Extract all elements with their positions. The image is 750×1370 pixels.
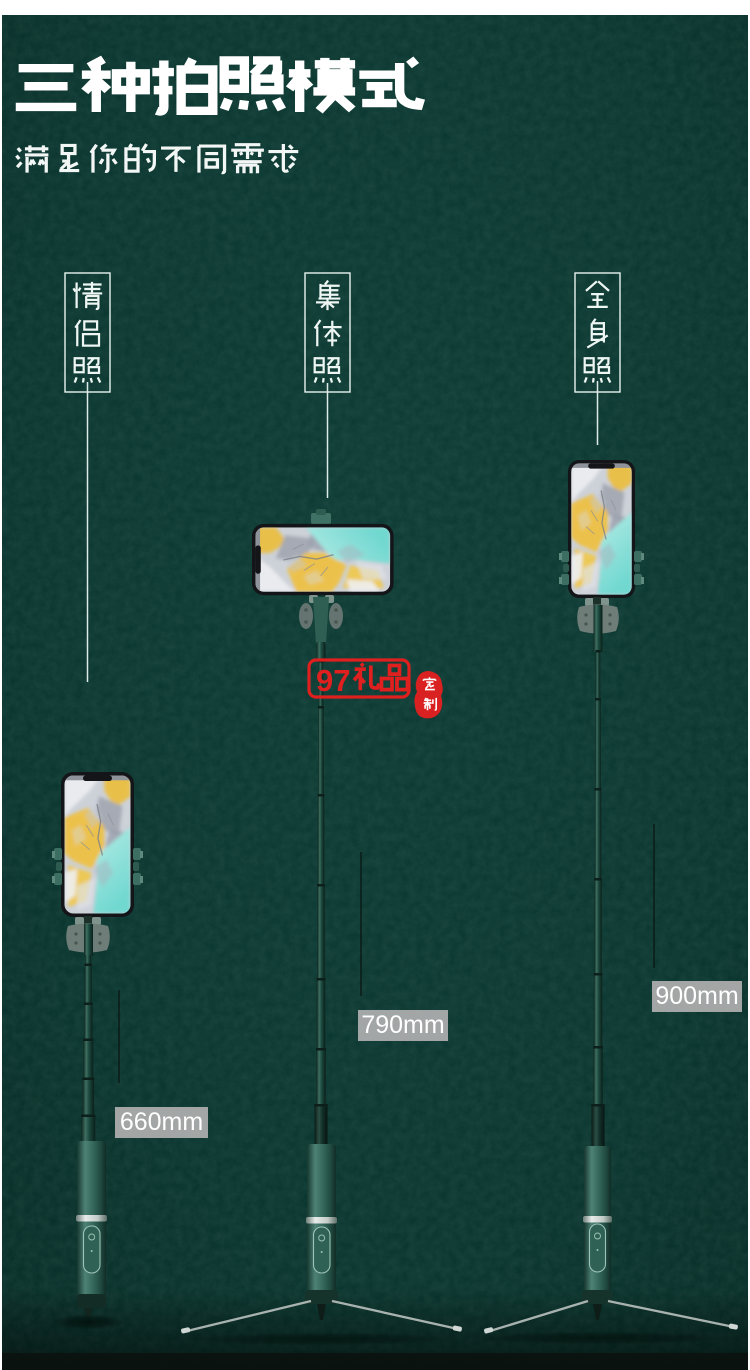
- svg-text:660mm: 660mm: [120, 1108, 203, 1136]
- svg-text:900mm: 900mm: [655, 982, 738, 1010]
- svg-text:97: 97: [316, 663, 350, 698]
- svg-text:790mm: 790mm: [361, 1011, 444, 1039]
